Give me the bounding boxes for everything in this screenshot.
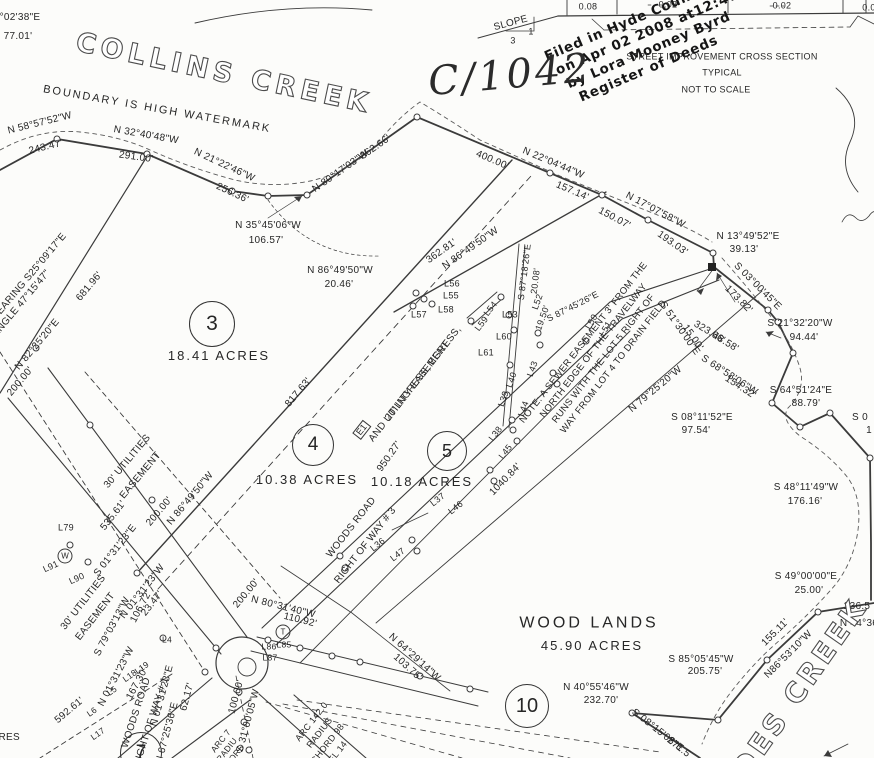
survey-label: 1: [528, 27, 533, 36]
survey-label: L55: [443, 291, 459, 300]
corner-bearing: °02'38"E: [0, 13, 40, 24]
survey-label: L79: [58, 523, 74, 532]
survey-label: N 86°49'50"W: [307, 266, 373, 277]
survey-label: S 48°11'49"W: [774, 483, 839, 494]
survey-label: N 35°45'06"W: [235, 221, 301, 232]
survey-label: 1: [866, 426, 872, 437]
survey-label: L61: [478, 348, 494, 357]
corner-distance: 77.01': [4, 32, 33, 43]
survey-label: S 0: [852, 413, 868, 424]
survey-label: N 40°55'46"W: [563, 683, 629, 694]
survey-label: S 85°05'45"W: [668, 655, 733, 666]
lot-acreage: 10.38 ACRES: [256, 473, 358, 487]
survey-label: 94.44': [790, 333, 819, 344]
survey-label: S 64°51'24"E: [770, 386, 833, 397]
survey-label: L53: [502, 310, 518, 319]
survey-label: 88.79': [792, 399, 821, 410]
survey-label: 106.57': [249, 236, 284, 247]
survey-label: 0.02: [659, 0, 678, 9]
survey-label: 0.02: [773, 1, 792, 10]
survey-label: 205.75': [688, 667, 723, 678]
leader-arrow: [697, 268, 714, 291]
survey-label: L58: [438, 305, 454, 314]
cross-section-title: STREET IMPROVEMENT CROSS SECTION: [626, 52, 817, 61]
survey-label: 20.46': [325, 280, 354, 291]
survey-label: 97.54': [682, 426, 711, 437]
survey-label: L85: [276, 641, 291, 650]
creek-line: [842, 211, 874, 222]
creek-line: [195, 8, 372, 23]
monument-marker: [708, 263, 716, 271]
cross-section-scale: NOT TO SCALE: [681, 85, 750, 94]
survey-label: 176.16': [788, 497, 823, 508]
survey-label: L56: [444, 279, 460, 288]
lot-number-circle: 10: [505, 684, 549, 728]
lot-number-circle: 5: [427, 431, 467, 471]
cul-de-sac-inner: [238, 658, 256, 676]
survey-label: 0.0: [862, 3, 874, 12]
survey-label: 25.00': [795, 586, 824, 597]
utility-symbol: T: [276, 625, 291, 640]
survey-label: L60: [496, 332, 512, 341]
lot-acreage: 18.41 ACRES: [168, 349, 270, 363]
survey-label: S 08°11'52"E: [671, 413, 733, 424]
creek-line: [836, 88, 858, 192]
woodlands-acreage: 45.90 ACRES: [541, 639, 643, 653]
survey-label: 39.13': [730, 245, 759, 256]
survey-label: 232.70': [584, 696, 619, 707]
survey-label: ACRES: [0, 733, 20, 744]
survey-label: 3: [510, 36, 515, 45]
lot-acreage: 10.18 ACRES: [371, 475, 473, 489]
lot-number-circle: 3: [189, 301, 235, 347]
utility-symbol: W: [58, 549, 73, 564]
survey-label: 0.08: [579, 2, 598, 11]
survey-label: L87: [262, 654, 277, 663]
survey-label: S 21°32'20"W: [767, 319, 832, 330]
leader-arrow: [392, 513, 428, 530]
plat-document: Filed in Hyde County, NC on Apr 02 2008 …: [0, 0, 874, 758]
cross-section-subtitle: TYPICAL: [702, 68, 742, 77]
survey-label: L86: [261, 643, 276, 652]
woodlands-name: WOOD LANDS: [519, 616, 658, 633]
survey-label: N 13°49'52"E: [716, 232, 779, 243]
boundary-line-north: [0, 117, 713, 253]
survey-label: S 49°00'00"E: [775, 572, 838, 583]
survey-label: L57: [411, 310, 427, 319]
lot-number-circle: 4: [292, 424, 334, 466]
survey-label: L4: [162, 636, 172, 645]
creek-line: [702, 258, 859, 744]
